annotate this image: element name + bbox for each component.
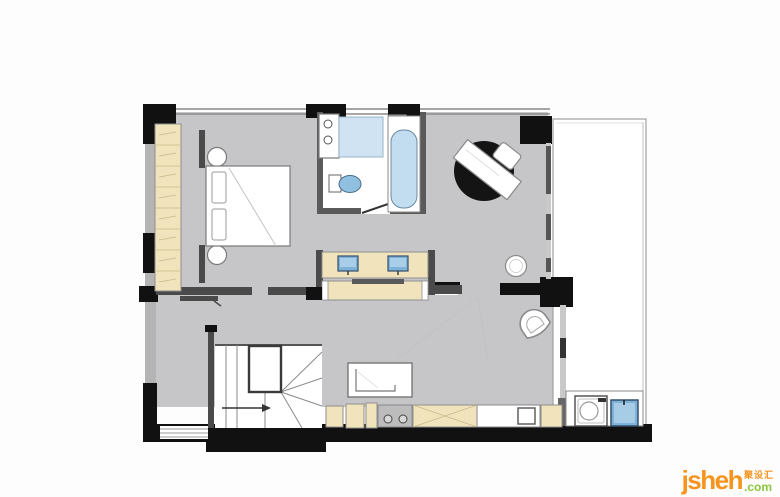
washing-machine bbox=[575, 396, 607, 426]
kitchen-cabinet bbox=[541, 405, 562, 427]
terrace bbox=[553, 119, 646, 426]
staircase bbox=[215, 345, 322, 428]
bed bbox=[206, 166, 290, 246]
kitchen-cabinet bbox=[346, 404, 364, 428]
laundry-area bbox=[566, 391, 643, 426]
pillow bbox=[212, 172, 226, 203]
nightstand-bottom bbox=[208, 246, 227, 265]
laundry-sink bbox=[611, 400, 638, 426]
watermark-brand: jsheh bbox=[682, 467, 742, 493]
sideboard bbox=[322, 279, 428, 300]
nightstand-top bbox=[208, 148, 227, 167]
bath-vanity bbox=[319, 114, 339, 158]
watermark-stack: 聚设汇 .com bbox=[744, 467, 774, 493]
cooktop bbox=[378, 405, 412, 427]
stair-void bbox=[249, 346, 281, 392]
toilet bbox=[329, 175, 361, 193]
entry-window bbox=[160, 426, 208, 439]
bathtub bbox=[388, 116, 420, 212]
kitchen-cabinet-long bbox=[413, 405, 477, 427]
wardrobe bbox=[155, 124, 181, 291]
pillow bbox=[212, 209, 226, 240]
kitchen-counter bbox=[326, 403, 562, 428]
stool bbox=[506, 256, 527, 277]
floor-bridge-door1 bbox=[252, 288, 268, 296]
watermark-tld: .com bbox=[744, 481, 774, 493]
faucet bbox=[324, 120, 332, 128]
faucet bbox=[324, 136, 332, 144]
kitchen-cabinet bbox=[366, 403, 377, 428]
watermark-cjk-label: 聚设汇 bbox=[744, 471, 774, 480]
study-window-wall bbox=[546, 143, 551, 279]
kitchen-cabinet bbox=[326, 406, 343, 427]
floor-bridge-door2 bbox=[458, 286, 500, 296]
sofa bbox=[348, 363, 412, 397]
double-sink-vanity bbox=[306, 250, 435, 300]
floor-plan bbox=[0, 0, 780, 497]
bottom-wall-step bbox=[206, 424, 326, 452]
shower-glass bbox=[339, 117, 383, 157]
kitchen-sink-cabinet bbox=[477, 405, 540, 427]
kitchen-sink bbox=[518, 408, 535, 424]
watermark-logo: jsheh 聚设汇 .com bbox=[682, 467, 774, 493]
